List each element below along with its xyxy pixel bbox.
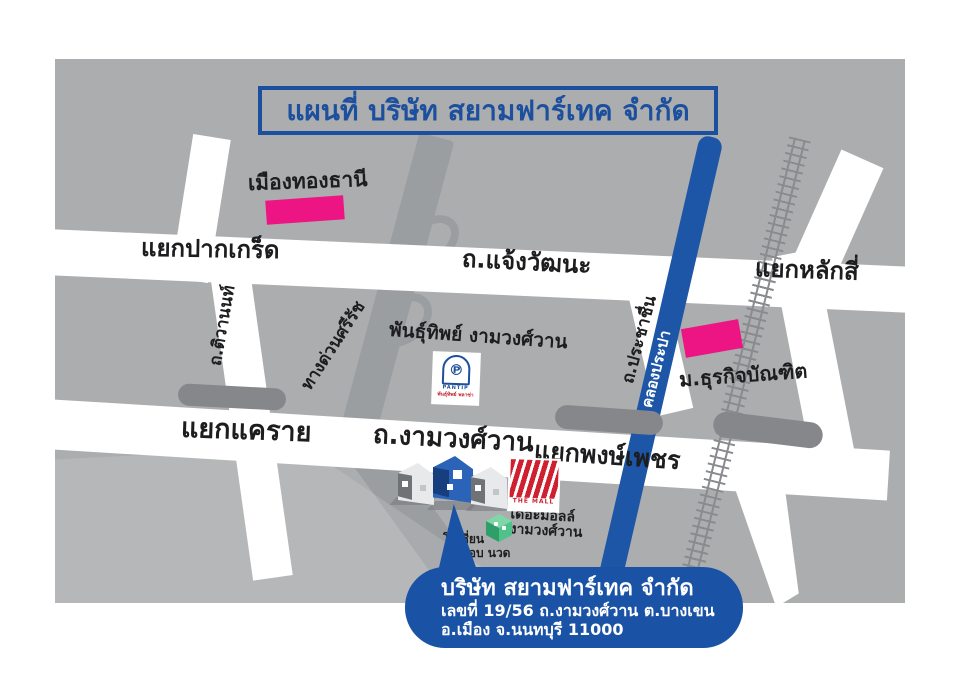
muang-thong-thani-marker	[265, 195, 344, 224]
pantip-subtitle: พันธุ์ทิพย์ พลาซ่า	[437, 390, 474, 399]
map-title-box: แผนที่ บริษัท สยามฟาร์เทค จำกัด	[258, 86, 718, 135]
callout-address-line1: เลขที่ 19/56 ถ.งามวงศ์วาน ต.บางเขน	[441, 601, 743, 620]
pantip-logo: ℗ PANTIP พันธุ์ทิพย์ พลาซ่า	[431, 351, 481, 406]
mall-stripes-icon	[510, 459, 559, 499]
company-building-icon	[433, 456, 473, 503]
yaek-khae-rai-label: แยกแคราย	[180, 406, 312, 454]
yaek-pak-kret-label: แยกปากเกร็ด	[141, 228, 280, 269]
muang-thong-thani-label: เมืองทองธานี	[247, 163, 368, 200]
callout-address-line2: อ.เมือง จ.นนทบุรี 11000	[441, 620, 743, 639]
map-canvas: คลองประปา เมืองทองธานี แยกปากเกร็ด ถ.แจ้…	[55, 59, 905, 603]
pantip-ngamwongwan-label: พันธุ์ทิพย์ งามวงศ์วาน	[388, 315, 568, 357]
pantip-arch-icon: ℗	[442, 355, 471, 386]
map-page: คลองประปา เมืองทองธานี แยกปากเกร็ด ถ.แจ้…	[0, 0, 960, 678]
callout-company-name: บริษัท สยามฟาร์เทค จำกัด	[441, 576, 743, 601]
chaengwattana-road-label: ถ.แจ้งวัฒนะ	[461, 239, 592, 285]
dhurakij-pundit-marker	[681, 319, 743, 358]
map-title: แผนที่ บริษัท สยามฟาร์เทค จำกัด	[286, 89, 689, 133]
the-mall-logo: THE MALL	[507, 457, 561, 513]
pantip-p-symbol: ℗	[448, 361, 464, 380]
gray-building-icon	[471, 467, 507, 509]
gray-building-icon	[398, 463, 434, 505]
ocean-building-icon	[486, 514, 512, 542]
dhurakij-pundit-label: ม.ธุรกิจบัณฑิต	[678, 355, 808, 396]
the-mall-label-line2: งามวงศ์วาน	[509, 522, 583, 541]
mall-name: THE MALL	[509, 497, 557, 506]
company-address-callout: บริษัท สยามฟาร์เทค จำกัด เลขที่ 19/56 ถ.…	[405, 567, 743, 648]
yaek-lak-si-label: แยกหลักสี่	[754, 248, 859, 291]
